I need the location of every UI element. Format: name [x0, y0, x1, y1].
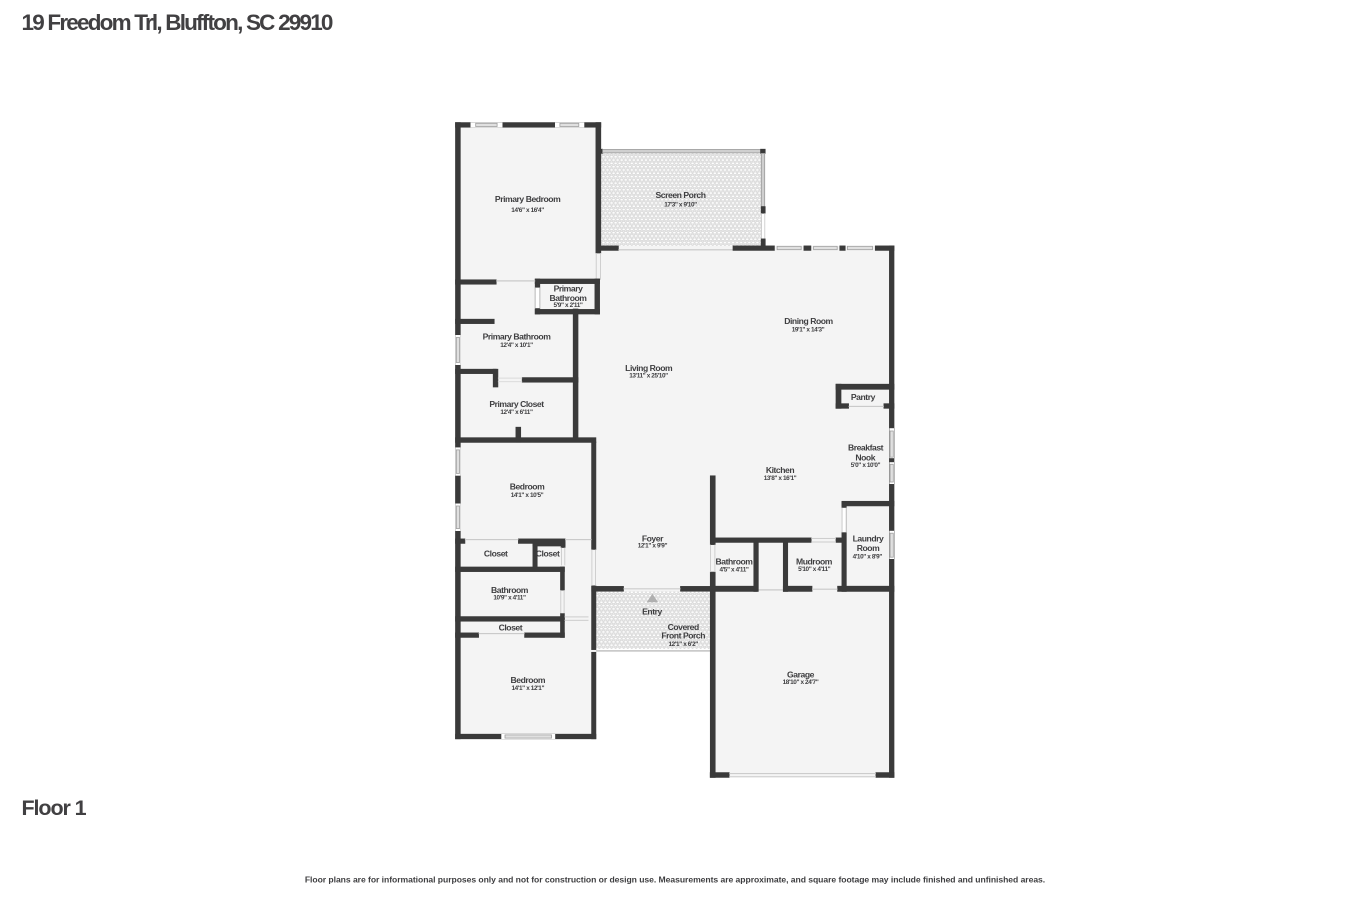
- svg-text:12'1" x 9'9": 12'1" x 9'9": [638, 543, 668, 550]
- svg-text:Nook: Nook: [855, 452, 875, 462]
- svg-text:5'10" x 4'11": 5'10" x 4'11": [798, 566, 831, 573]
- svg-text:Pantry: Pantry: [851, 392, 876, 402]
- svg-text:Closet: Closet: [536, 549, 560, 559]
- svg-text:Floor plans are for informatio: Floor plans are for informational purpos…: [305, 875, 1045, 885]
- svg-text:Primary Bedroom: Primary Bedroom: [495, 194, 561, 204]
- svg-text:Closet: Closet: [499, 623, 523, 633]
- svg-text:13'8" x 16'1": 13'8" x 16'1": [764, 475, 797, 482]
- svg-text:Front Porch: Front Porch: [661, 631, 705, 641]
- svg-text:14'1" x 12'1": 14'1" x 12'1": [512, 685, 545, 692]
- svg-text:Room: Room: [857, 543, 880, 553]
- svg-text:Primary Closet: Primary Closet: [489, 399, 544, 409]
- svg-text:19 Freedom Trl, Bluffton, SC 2: 19 Freedom Trl, Bluffton, SC 29910: [22, 10, 333, 35]
- svg-text:Living Room: Living Room: [625, 363, 673, 373]
- svg-text:10'9" x 4'11": 10'9" x 4'11": [493, 594, 526, 601]
- svg-text:Bathroom: Bathroom: [716, 557, 754, 567]
- svg-text:Entry: Entry: [642, 607, 662, 617]
- svg-text:Bedroom: Bedroom: [511, 675, 546, 685]
- svg-text:4'10" x 8'9": 4'10" x 8'9": [853, 553, 883, 560]
- svg-text:14'6" x 16'4": 14'6" x 16'4": [511, 207, 544, 214]
- svg-text:Primary: Primary: [554, 284, 584, 294]
- svg-text:Mudroom: Mudroom: [796, 557, 833, 567]
- svg-text:4'5" x 4'11": 4'5" x 4'11": [719, 567, 748, 574]
- svg-text:Breakfast: Breakfast: [848, 442, 884, 452]
- svg-text:Closet: Closet: [484, 549, 508, 559]
- svg-text:19'1" x 14'3": 19'1" x 14'3": [792, 326, 825, 333]
- svg-text:Bathroom: Bathroom: [491, 585, 529, 595]
- svg-text:Kitchen: Kitchen: [766, 465, 795, 475]
- svg-text:17'3" x 9'10": 17'3" x 9'10": [664, 201, 697, 208]
- svg-text:12'1" x 6'2": 12'1" x 6'2": [668, 641, 698, 648]
- svg-text:Dining Room: Dining Room: [784, 316, 833, 326]
- svg-text:Laundry: Laundry: [853, 533, 884, 543]
- svg-text:5'9" x 2'11": 5'9" x 2'11": [553, 302, 582, 309]
- svg-text:12'4" x 6'11": 12'4" x 6'11": [500, 409, 533, 416]
- svg-text:18'10" x 24'7": 18'10" x 24'7": [783, 679, 819, 686]
- svg-text:13'11" x 25'10": 13'11" x 25'10": [629, 372, 668, 379]
- svg-text:Screen Porch: Screen Porch: [655, 190, 705, 200]
- svg-text:12'4" x 10'1": 12'4" x 10'1": [500, 342, 533, 349]
- svg-text:Floor 1: Floor 1: [22, 796, 87, 820]
- svg-text:5'0" x 10'0": 5'0" x 10'0": [851, 462, 881, 469]
- svg-text:Garage: Garage: [787, 670, 815, 680]
- svg-text:14'1" x 10'5": 14'1" x 10'5": [511, 492, 544, 499]
- svg-text:Bedroom: Bedroom: [510, 482, 545, 492]
- svg-text:Primary Bathroom: Primary Bathroom: [483, 332, 552, 342]
